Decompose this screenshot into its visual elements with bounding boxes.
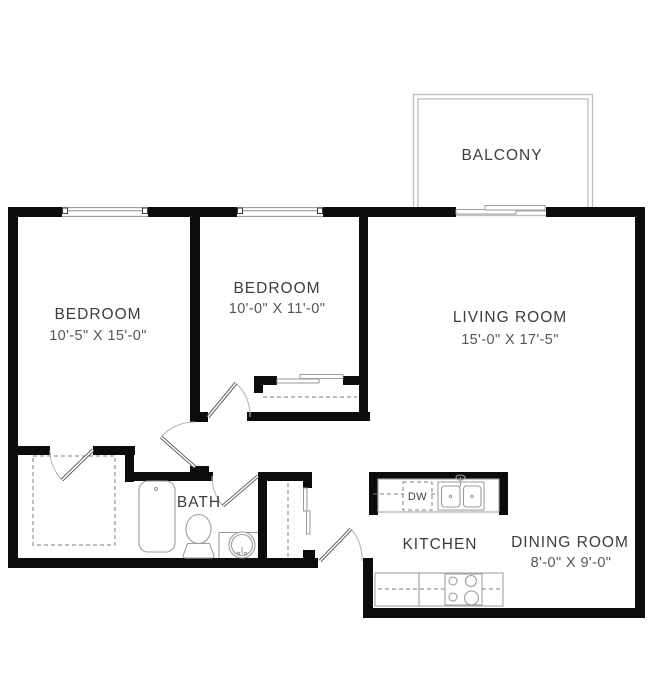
wall-segment xyxy=(8,207,62,217)
entry-door-icon xyxy=(320,529,362,561)
door-swing-icon xyxy=(161,422,195,467)
floor-plan-svg: DW BALCONY BEDROOM 10'-5" X 15'-0" BEDRO… xyxy=(0,0,650,695)
door-swing-icon xyxy=(50,450,93,480)
dishwasher-label: DW xyxy=(408,491,427,503)
bedroom1-label: BEDROOM xyxy=(54,306,141,323)
wall-segment xyxy=(363,608,645,618)
wall-segment xyxy=(254,376,263,393)
wall-segment xyxy=(303,550,315,568)
range-icon xyxy=(445,574,482,605)
wall-segment xyxy=(635,207,645,618)
dining-room-label: DINING ROOM xyxy=(511,534,629,551)
window-icon xyxy=(237,207,323,217)
bifold-door-icon xyxy=(304,488,311,534)
wall-segment xyxy=(8,558,318,568)
living-room-label: LIVING ROOM xyxy=(453,309,567,326)
bedroom1-dims: 10'-5" X 15'-0" xyxy=(49,328,147,344)
wall-segment xyxy=(148,207,237,217)
wall-segment xyxy=(190,412,208,422)
toilet-icon xyxy=(183,515,214,559)
wall-segment xyxy=(18,446,50,455)
door-swing-icon xyxy=(208,383,250,417)
bathroom-sink-icon xyxy=(219,532,258,558)
wall-segment xyxy=(359,217,368,421)
closet-sliding-door-icon xyxy=(277,375,343,384)
living-room-dims: 15'-0" X 17'-5" xyxy=(461,332,559,348)
wall-segment xyxy=(303,472,312,488)
kitchen-counter xyxy=(375,573,503,606)
window-icon xyxy=(62,207,148,217)
balcony-label: BALCONY xyxy=(461,147,542,164)
sliding-door-icon xyxy=(456,206,545,215)
wall-segment xyxy=(247,412,370,421)
wall-segment xyxy=(258,472,267,568)
wall-segment xyxy=(323,207,456,217)
bedroom2-dims: 10'-0" X 11'-0" xyxy=(229,301,326,317)
wall-segment xyxy=(546,207,645,217)
kitchen-label: KITCHEN xyxy=(402,536,477,553)
bathtub-icon xyxy=(139,481,175,552)
bedroom2-label: BEDROOM xyxy=(233,280,320,297)
wall-segment xyxy=(8,207,18,568)
wall-segment xyxy=(190,217,200,412)
wall-segment xyxy=(363,558,373,618)
dining-room-dims: 8'-0" X 9'-0" xyxy=(531,555,612,571)
wall-segment xyxy=(499,472,508,515)
wall-segment xyxy=(190,466,209,481)
bath-label: BATH xyxy=(177,494,221,511)
floor-plan: DW BALCONY BEDROOM 10'-5" X 15'-0" BEDRO… xyxy=(0,0,650,695)
